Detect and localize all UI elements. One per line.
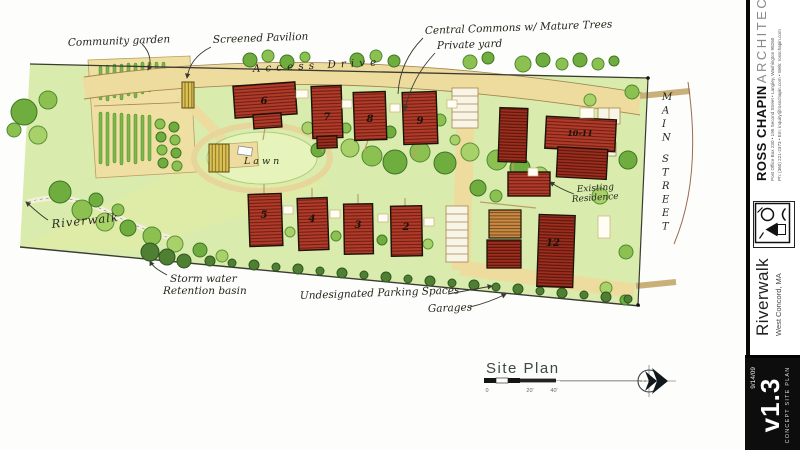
building-number: 6 (261, 96, 268, 107)
north-arrow-icon (560, 365, 676, 397)
title-block-sidebar: ROSS CHAPINARCHITECTS Post Office Box 23… (745, 0, 800, 450)
cottage-12 (537, 214, 575, 287)
building-number: 5 (261, 210, 268, 221)
sheet-title: CONCEPT SITE PLAN (785, 363, 791, 447)
title-and-scale: Site Plan 0 20' 40' (484, 360, 676, 397)
label-main-street: MAINSTREET (661, 92, 673, 233)
drawing-title: Site Plan (486, 360, 560, 377)
label-lawn: Lawn (243, 156, 282, 167)
building-number: 12 (546, 238, 560, 249)
main-street-curb (674, 82, 693, 244)
project-name: Riverwalk (753, 258, 773, 336)
label-screened-pavilion: Screened Pavilion (213, 31, 309, 46)
building-number: 2 (402, 222, 410, 233)
label-undesignated-parking: Undesignated Parking Spaces (300, 284, 461, 302)
project-title: Riverwalk West Concord, MA (753, 258, 783, 336)
label-garages: Garages (428, 301, 473, 315)
firm-name-bold: ROSS CHAPIN (754, 85, 769, 181)
site-plan-drawing: 6 7 8 9 10-11 12 5 4 3 2 Community garde… (0, 0, 745, 450)
cottage-east (498, 108, 528, 163)
building-number: 9 (417, 116, 424, 127)
label-stormwater-2: Retention basin (162, 285, 247, 297)
firm-address-line1: Post Office Box 230 • 195 Second Street … (770, 29, 777, 181)
label-private-yard: Private yard (436, 38, 503, 52)
scale-bar: 0 20' 40' (484, 378, 640, 394)
project-location: West Concord, MA (774, 258, 783, 336)
building-number: 4 (309, 214, 316, 225)
version-block: 9/14/09 v1.3 CONCEPT SITE PLAN (745, 355, 800, 450)
garden-shed (209, 144, 229, 172)
building-number: 8 (367, 114, 374, 125)
label-community-garden: Community garden (68, 33, 171, 49)
building-number: 7 (324, 112, 331, 123)
parked-car (238, 146, 253, 156)
firm-address-line2: Ph: (360) 221-2373 • Em: inquiry@rosscha… (777, 29, 784, 181)
label-stormwater-1: Storm water (170, 273, 238, 285)
scale-tick: 0 (485, 388, 488, 394)
firm-name: ROSS CHAPINARCHITECTS (754, 0, 769, 181)
building-number: 3 (355, 220, 362, 231)
concept-site-plan-sheet: 6 7 8 9 10-11 12 5 4 3 2 Community garde… (0, 0, 800, 450)
label-central-commons: Central Commons w/ Mature Trees (425, 18, 613, 37)
screened-pavilion-structure (182, 82, 194, 108)
version-number: v1.3 (757, 363, 783, 447)
building-number: 10-11 (567, 128, 593, 138)
scale-tick: 40' (550, 388, 557, 394)
firm-name-light: ARCHITECTS (754, 0, 769, 83)
firm-logo (753, 201, 795, 248)
firm-address: Post Office Box 230 • 195 Second Street … (770, 29, 784, 181)
scale-tick: 20' (526, 388, 533, 394)
